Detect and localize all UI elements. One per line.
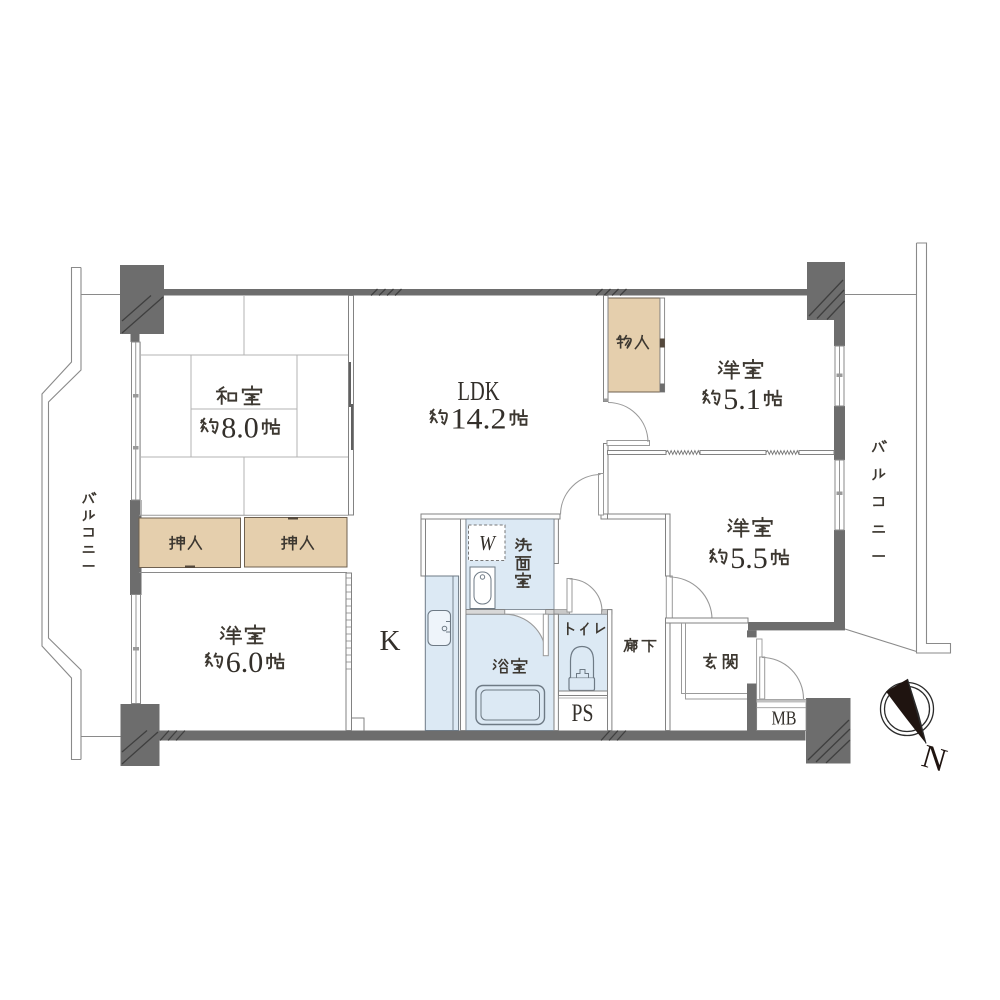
svg-text:LDK: LDK [458, 376, 500, 406]
svg-text:5.1: 5.1 [723, 383, 761, 416]
svg-text:PS: PS [572, 700, 594, 727]
svg-text:8.0: 8.0 [221, 412, 259, 445]
svg-text:5.5: 5.5 [730, 542, 768, 575]
svg-text:K: K [380, 625, 401, 657]
svg-text:6.0: 6.0 [226, 646, 264, 679]
svg-text:14.2: 14.2 [451, 403, 507, 436]
svg-text:MB: MB [772, 708, 797, 730]
svg-text:W: W [479, 531, 497, 555]
